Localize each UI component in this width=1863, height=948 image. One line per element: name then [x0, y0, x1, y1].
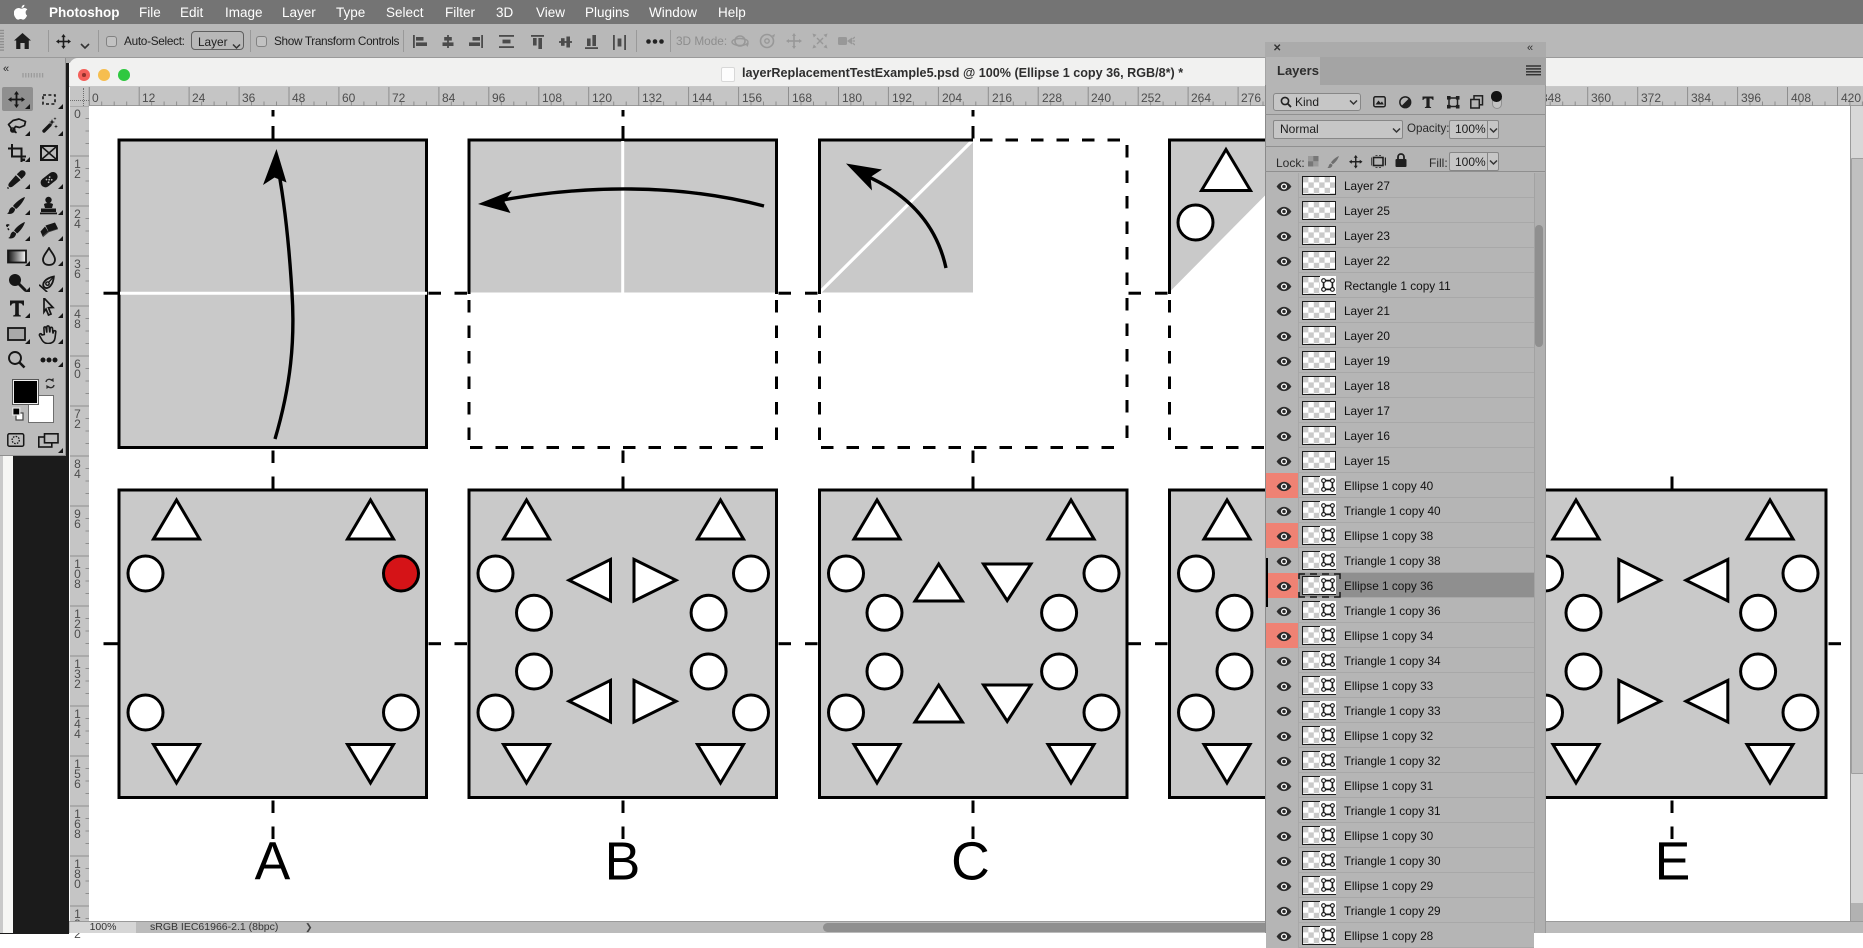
svg-text:B: B [605, 833, 641, 892]
svg-text:A: A [255, 833, 291, 892]
svg-text:E: E [1655, 833, 1691, 892]
svg-text:C: C [951, 833, 990, 892]
